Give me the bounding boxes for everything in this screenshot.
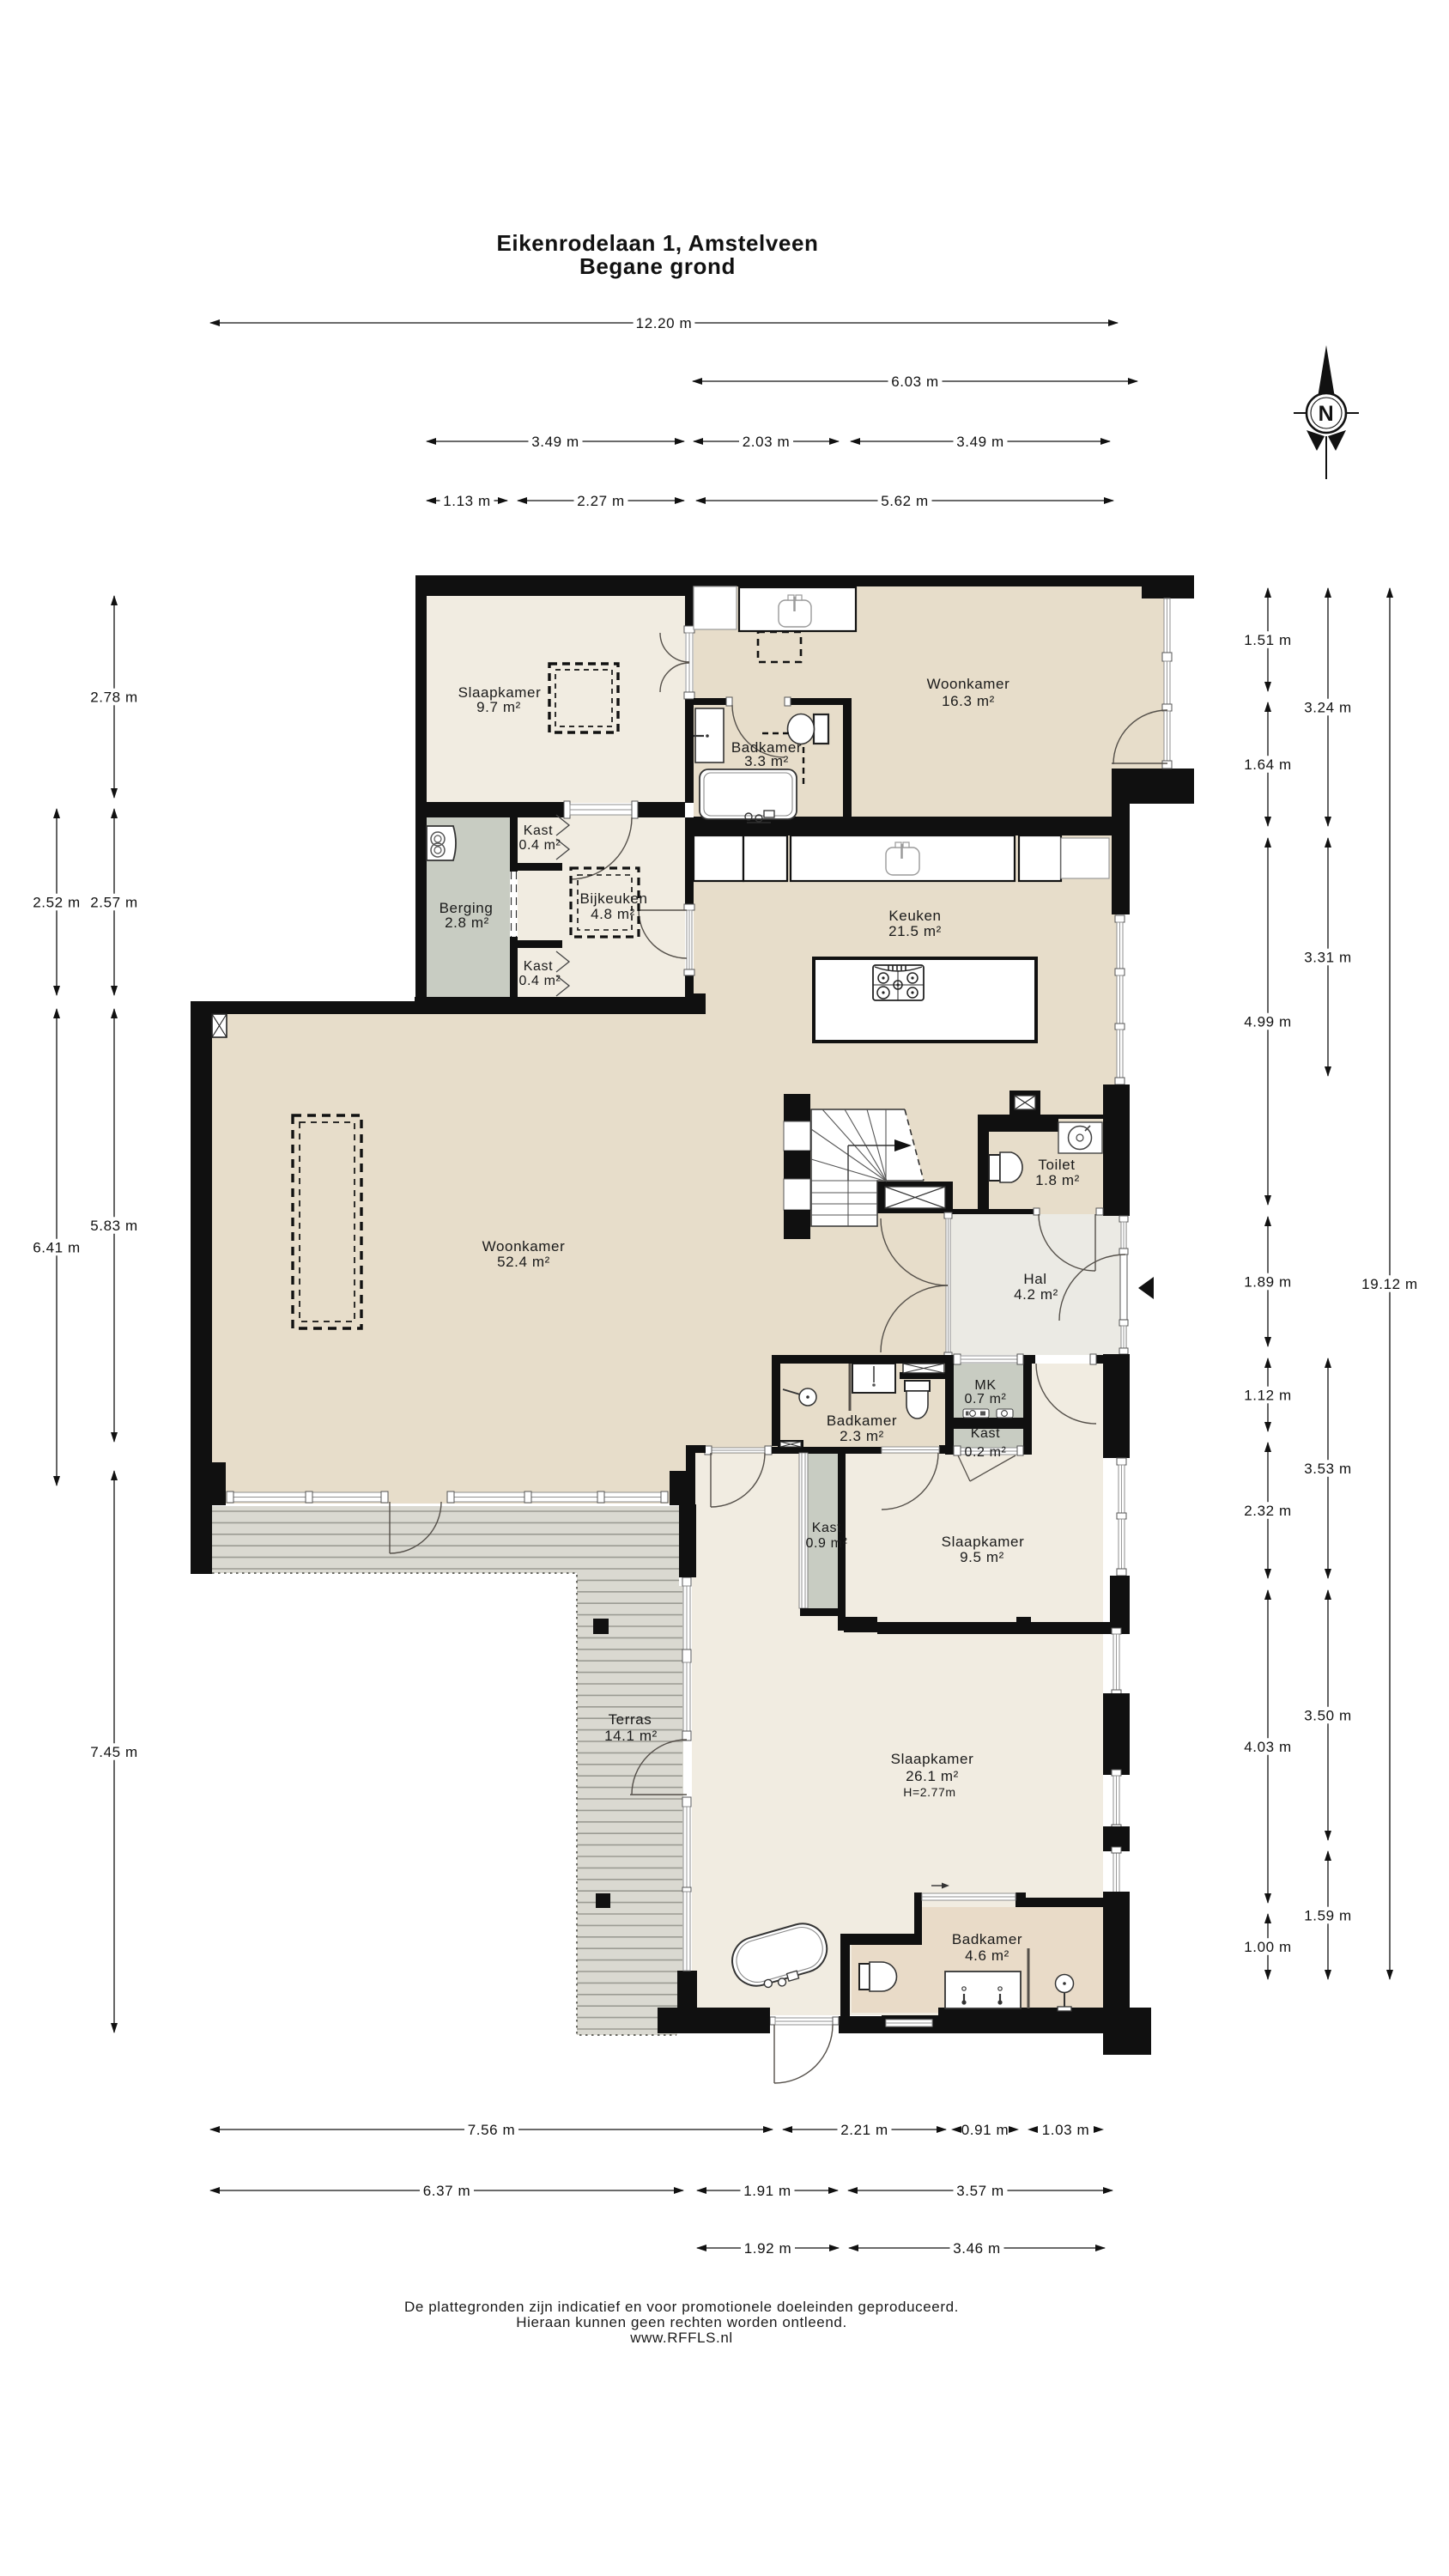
- svg-text:16.3 m²: 16.3 m²: [942, 693, 995, 709]
- svg-text:1.59 m: 1.59 m: [1304, 1908, 1352, 1924]
- svg-text:2.21 m: 2.21 m: [840, 2122, 888, 2138]
- svg-text:6.37 m: 6.37 m: [423, 2183, 471, 2199]
- svg-text:1.89 m: 1.89 m: [1244, 1274, 1292, 1291]
- svg-text:4.99 m: 4.99 m: [1244, 1014, 1292, 1030]
- svg-text:Slaapkamer: Slaapkamer: [942, 1534, 1025, 1550]
- svg-text:5.83 m: 5.83 m: [90, 1218, 138, 1234]
- svg-text:4.6 m²: 4.6 m²: [965, 1947, 1009, 1964]
- svg-text:6.03 m: 6.03 m: [891, 374, 939, 390]
- svg-text:6.41 m: 6.41 m: [33, 1240, 81, 1256]
- svg-text:0.2 m²: 0.2 m²: [965, 1445, 1007, 1460]
- svg-text:2.3 m²: 2.3 m²: [840, 1428, 884, 1444]
- svg-text:21.5 m²: 21.5 m²: [888, 923, 942, 939]
- svg-text:3.49 m: 3.49 m: [956, 434, 1004, 450]
- svg-text:26.1 m²: 26.1 m²: [906, 1768, 959, 1784]
- svg-text:7.56 m: 7.56 m: [468, 2122, 516, 2138]
- svg-text:MK: MK: [974, 1378, 996, 1393]
- svg-text:0.7 m²: 0.7 m²: [965, 1392, 1007, 1406]
- svg-text:1.13 m: 1.13 m: [443, 493, 491, 509]
- svg-text:3.46 m: 3.46 m: [953, 2240, 1001, 2257]
- svg-text:www.RFFLS.nl: www.RFFLS.nl: [629, 2330, 733, 2346]
- svg-text:1.8 m²: 1.8 m²: [1035, 1172, 1080, 1188]
- svg-text:Eikenrodelaan 1, Amstelveen: Eikenrodelaan 1, Amstelveen: [496, 230, 818, 256]
- svg-text:2.27 m: 2.27 m: [577, 493, 625, 509]
- svg-text:3.50 m: 3.50 m: [1304, 1708, 1352, 1724]
- svg-text:2.8 m²: 2.8 m²: [445, 914, 489, 931]
- svg-text:2.52 m: 2.52 m: [33, 895, 81, 911]
- svg-text:5.62 m: 5.62 m: [881, 493, 929, 509]
- svg-text:1.51 m: 1.51 m: [1244, 632, 1292, 648]
- svg-text:0.9 m²: 0.9 m²: [806, 1536, 848, 1551]
- svg-text:3.53 m: 3.53 m: [1304, 1461, 1352, 1477]
- svg-text:3.57 m: 3.57 m: [956, 2183, 1004, 2199]
- svg-text:2.32 m: 2.32 m: [1244, 1503, 1292, 1519]
- svg-text:0.4 m²: 0.4 m²: [519, 838, 561, 853]
- svg-text:2.03 m: 2.03 m: [743, 434, 791, 450]
- svg-text:4.2 m²: 4.2 m²: [1014, 1286, 1058, 1303]
- svg-text:Slaapkamer: Slaapkamer: [891, 1751, 974, 1767]
- svg-text:1.91 m: 1.91 m: [743, 2183, 791, 2199]
- svg-text:2.78 m: 2.78 m: [90, 690, 138, 706]
- svg-text:4.8 m²: 4.8 m²: [591, 906, 635, 922]
- svg-text:1.64 m: 1.64 m: [1244, 756, 1292, 773]
- svg-text:3.3 m²: 3.3 m²: [744, 753, 789, 769]
- svg-text:2.57 m: 2.57 m: [90, 895, 138, 911]
- svg-text:4.03 m: 4.03 m: [1244, 1739, 1292, 1755]
- svg-text:Terras: Terras: [609, 1711, 652, 1728]
- svg-text:N: N: [1319, 402, 1335, 426]
- svg-text:9.5 m²: 9.5 m²: [960, 1549, 1004, 1565]
- svg-text:Hal: Hal: [1023, 1271, 1046, 1287]
- svg-text:Kast: Kast: [524, 959, 553, 974]
- svg-text:Hieraan kunnen geen rechten wo: Hieraan kunnen geen rechten worden ontle…: [516, 2314, 847, 2330]
- svg-text:1.92 m: 1.92 m: [744, 2240, 792, 2257]
- svg-text:Kast: Kast: [812, 1521, 841, 1535]
- svg-text:Woonkamer: Woonkamer: [482, 1238, 566, 1255]
- svg-text:52.4 m²: 52.4 m²: [497, 1254, 550, 1270]
- svg-text:0.4 m²: 0.4 m²: [519, 974, 561, 988]
- svg-text:Badkamer: Badkamer: [827, 1413, 897, 1429]
- svg-text:H=2.77m: H=2.77m: [903, 1785, 955, 1799]
- svg-text:De plattegronden zijn indicati: De plattegronden zijn indicatief en voor…: [404, 2299, 959, 2315]
- svg-text:Begane grond: Begane grond: [579, 253, 736, 279]
- svg-text:7.45 m: 7.45 m: [90, 1744, 138, 1760]
- svg-text:3.31 m: 3.31 m: [1304, 950, 1352, 966]
- svg-text:1.03 m: 1.03 m: [1042, 2122, 1090, 2138]
- svg-text:Toilet: Toilet: [1038, 1157, 1075, 1173]
- svg-text:Keuken: Keuken: [888, 908, 941, 924]
- svg-text:3.24 m: 3.24 m: [1304, 700, 1352, 716]
- svg-text:Bijkeuken: Bijkeuken: [579, 890, 647, 907]
- svg-text:14.1 m²: 14.1 m²: [604, 1728, 658, 1744]
- svg-text:Kast: Kast: [524, 823, 553, 838]
- svg-text:Woonkamer: Woonkamer: [927, 676, 1010, 692]
- svg-text:0.91 m: 0.91 m: [961, 2122, 1009, 2138]
- svg-text:19.12 m: 19.12 m: [1361, 1276, 1418, 1292]
- svg-text:9.7 m²: 9.7 m²: [476, 699, 521, 715]
- svg-text:1.12 m: 1.12 m: [1244, 1388, 1292, 1404]
- svg-text:1.00 m: 1.00 m: [1244, 1939, 1292, 1955]
- svg-text:Badkamer: Badkamer: [952, 1931, 1022, 1947]
- svg-text:Kast: Kast: [971, 1426, 1000, 1441]
- svg-text:3.49 m: 3.49 m: [531, 434, 579, 450]
- svg-text:12.20 m: 12.20 m: [636, 315, 693, 331]
